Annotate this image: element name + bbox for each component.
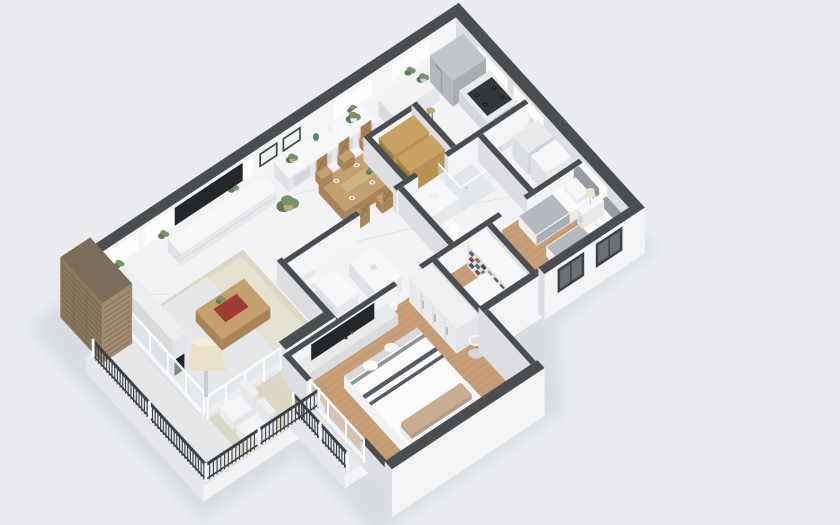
floor-plan-stage	[0, 0, 840, 525]
burner	[502, 97, 504, 98]
plant-pot	[350, 118, 357, 122]
plant-basket	[283, 205, 293, 211]
sink-basin	[371, 265, 377, 269]
bar-plant	[419, 73, 426, 79]
window-plant	[115, 260, 121, 265]
plant-pot	[420, 79, 426, 82]
plate	[371, 181, 374, 183]
window-plant	[407, 67, 413, 72]
plant-pot	[289, 159, 295, 162]
plate	[351, 197, 354, 199]
master-exterior-wall-side	[385, 461, 392, 517]
closet-exterior-wall-side	[479, 307, 484, 356]
burner	[493, 87, 495, 88]
round-cushion	[363, 361, 378, 371]
plate	[355, 164, 358, 166]
sink-basin	[429, 193, 439, 200]
round-cushion	[384, 343, 398, 352]
window-plant	[350, 105, 356, 110]
table-plant	[218, 296, 224, 300]
toilet-seat	[449, 223, 459, 234]
console-decor	[344, 337, 348, 340]
console-decor	[350, 332, 353, 334]
sideboard-plant	[349, 112, 357, 119]
floor-plan-render	[0, 0, 840, 525]
window-plant	[160, 230, 166, 235]
plate	[335, 180, 338, 182]
table-lamp-shade	[587, 188, 594, 191]
vase	[313, 133, 319, 141]
sideboard-plant	[288, 153, 295, 159]
burner	[476, 95, 478, 96]
bedroom-exterior-wall-side	[538, 268, 544, 321]
burner	[484, 104, 486, 105]
potted-plant	[281, 195, 294, 205]
bar-stool	[426, 107, 435, 113]
vase	[328, 125, 333, 132]
interior-wall-side	[393, 187, 397, 215]
